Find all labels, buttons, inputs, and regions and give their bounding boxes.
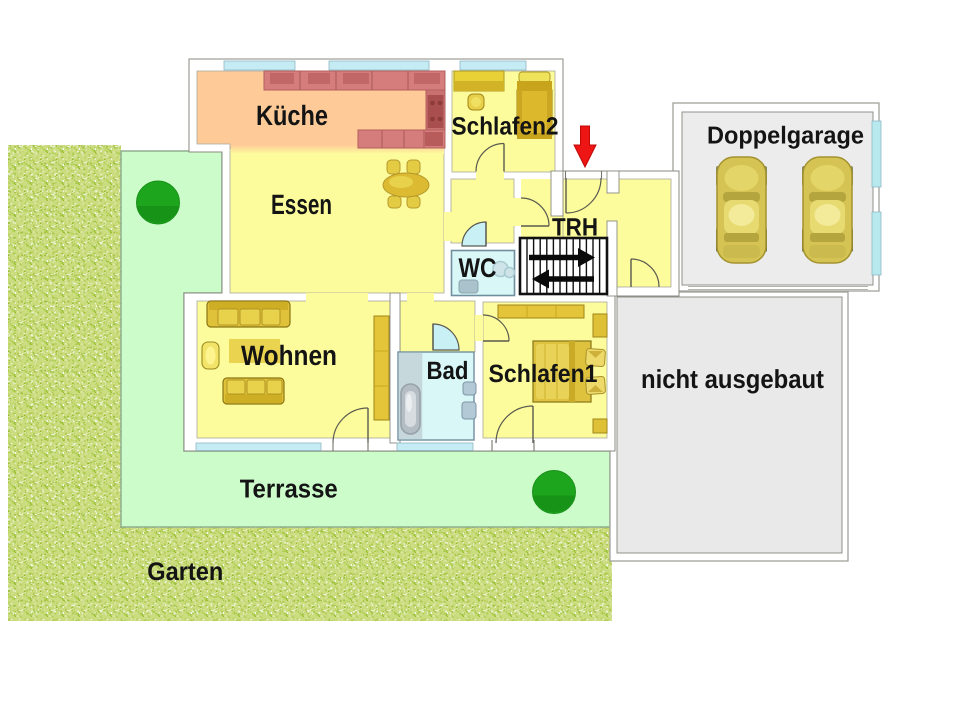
- svg-text:Doppelgarage: Doppelgarage: [707, 123, 864, 150]
- svg-text:TRH: TRH: [552, 214, 598, 242]
- svg-text:Schlafen2: Schlafen2: [452, 113, 559, 141]
- svg-text:Bad: Bad: [427, 357, 469, 385]
- svg-text:Küche: Küche: [256, 100, 328, 131]
- svg-text:WC: WC: [459, 253, 497, 283]
- svg-text:Essen: Essen: [271, 189, 332, 220]
- svg-text:Wohnen: Wohnen: [241, 340, 337, 371]
- svg-text:nicht ausgebaut: nicht ausgebaut: [641, 364, 824, 394]
- svg-text:Schlafen1: Schlafen1: [489, 360, 598, 388]
- svg-text:Garten: Garten: [147, 558, 223, 586]
- svg-text:Terrasse: Terrasse: [240, 474, 338, 504]
